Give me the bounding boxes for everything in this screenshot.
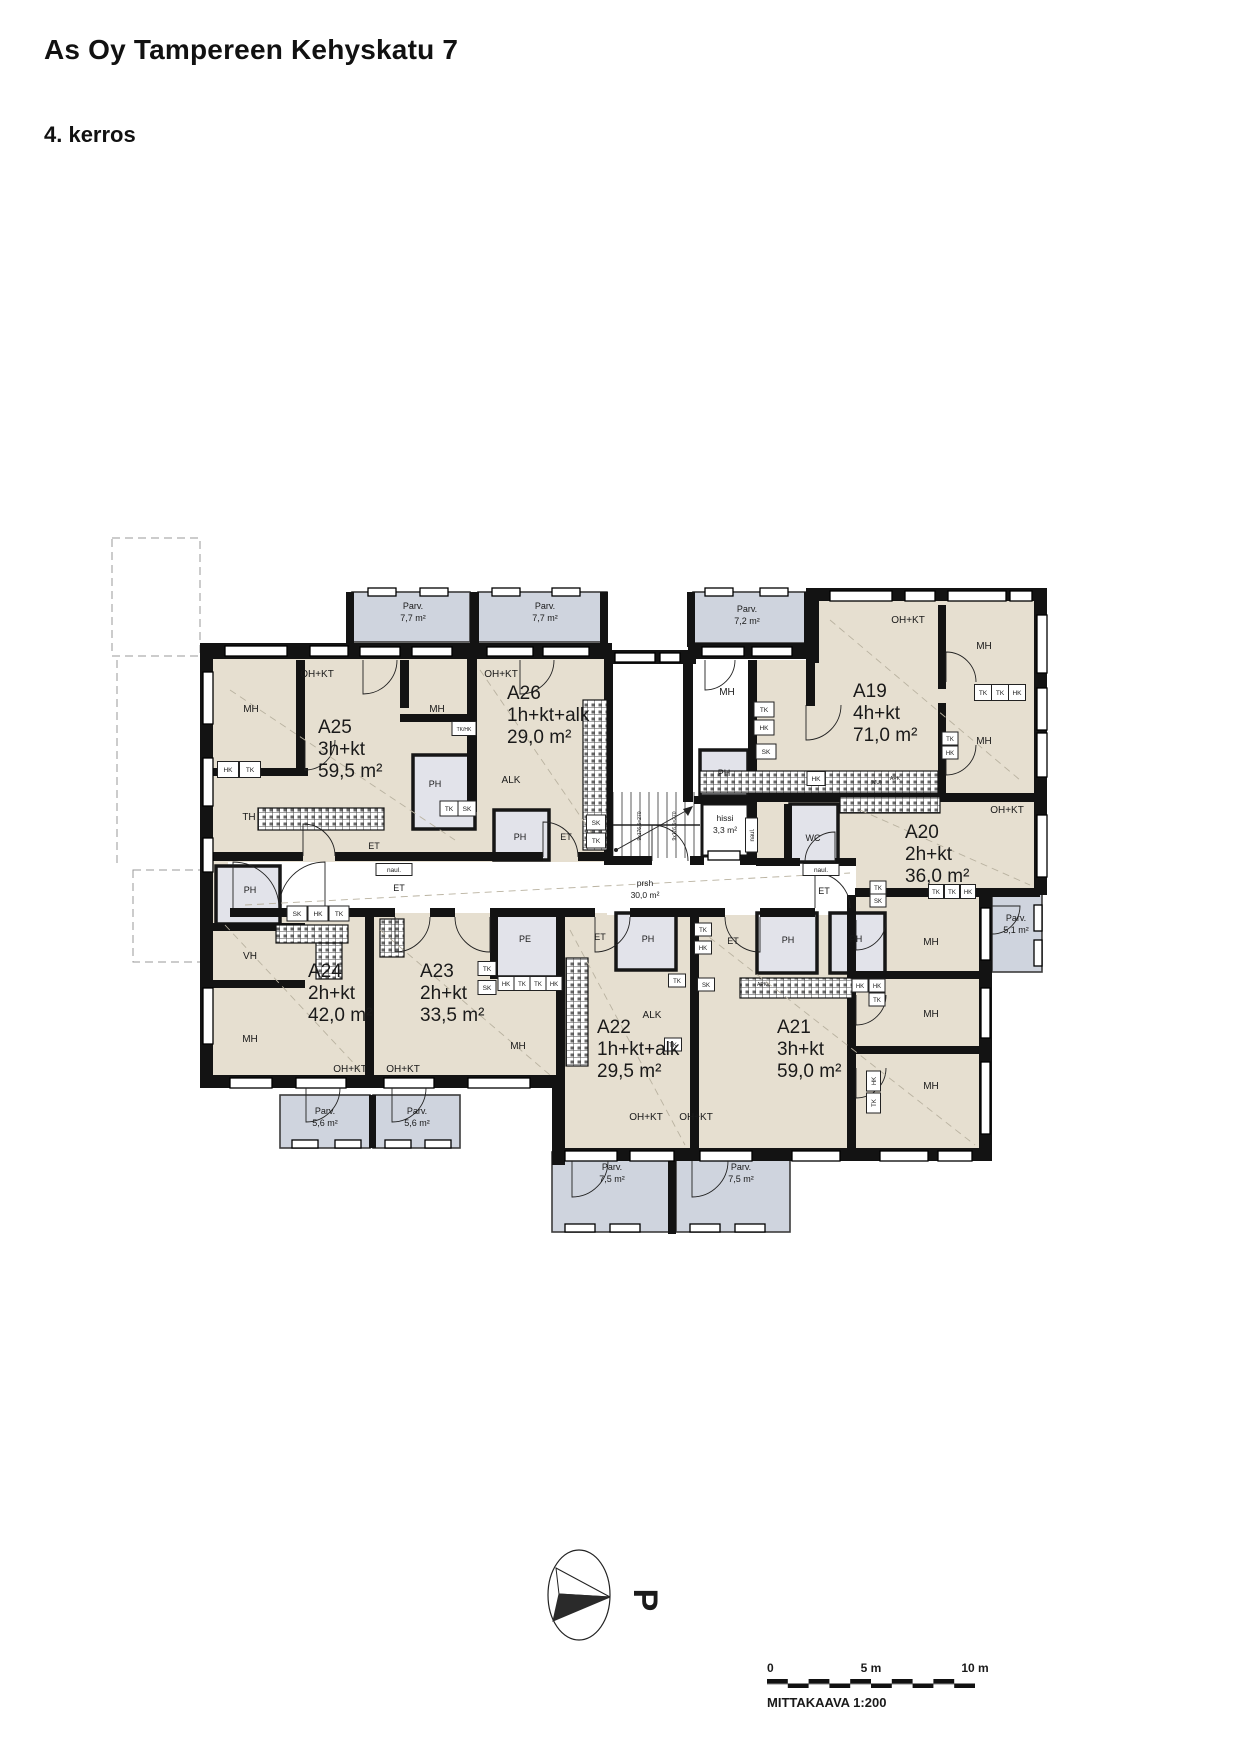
room-label: SK: [293, 911, 302, 918]
room-label: HK: [873, 984, 881, 990]
room-label: PH: [850, 934, 863, 944]
room-label: TK: [932, 890, 940, 896]
balcony-label: Parv.: [403, 601, 423, 611]
room-label: TK: [874, 886, 882, 892]
apartment-area: 29,5 m²: [597, 1061, 661, 1082]
apartment-area: 59,0 m²: [777, 1061, 841, 1082]
scale-zero: 0: [767, 1661, 774, 1675]
scale-mid: 5 m: [861, 1661, 882, 1675]
apartment-id: A26: [507, 683, 541, 704]
room-label: HK: [856, 984, 864, 990]
room-label: naul.: [814, 867, 828, 874]
balcony-label: Parv.: [737, 604, 757, 614]
apartment-id: A25: [318, 717, 352, 738]
scale-bar: 0 5 m 10 m MITTAKAAVA 1:200: [767, 1661, 989, 1710]
room-label: MH: [923, 1081, 939, 1092]
room-label: HK: [872, 1077, 878, 1085]
room-label: PH: [429, 779, 442, 789]
room-label: TK: [673, 979, 681, 985]
room-label: TK: [873, 998, 881, 1004]
room-label: ET: [818, 886, 830, 896]
room-label: naul.: [750, 828, 756, 841]
room-label: TK: [592, 838, 601, 845]
room-label: ET: [727, 936, 739, 946]
room-label: HK: [759, 725, 769, 732]
room-label: TK: [483, 966, 492, 973]
north-arrow: P: [548, 1550, 664, 1640]
property-lines: [112, 538, 201, 962]
room-label: TK: [996, 690, 1005, 697]
room-label: PH: [244, 885, 257, 895]
room-label: TK: [946, 737, 954, 743]
apartment-area: 29,0 m²: [507, 727, 571, 748]
room-label: HK: [502, 982, 510, 988]
apartment-area: 59,5 m²: [318, 761, 382, 782]
room-label: TK: [246, 767, 255, 774]
room-label: ALK: [643, 1010, 662, 1021]
apartment-area: 36,0 m²: [905, 866, 969, 887]
room-label: prsh: [637, 878, 654, 888]
room-label: TK: [335, 911, 344, 918]
apartment-area: 42,0 m²: [308, 1005, 372, 1026]
room-label: MH: [242, 1034, 258, 1045]
room-label: TK: [760, 707, 769, 714]
balcony-area: 7,7 m²: [400, 613, 426, 623]
scale-end: 10 m: [961, 1661, 988, 1675]
apartment-id: A22: [597, 1017, 631, 1038]
room-label: SK: [762, 749, 771, 756]
room-label: OH+KT: [484, 669, 518, 680]
room-label: 9x176,5=270: [637, 811, 643, 840]
apartment-id: A24: [308, 961, 342, 982]
room-label: HK: [223, 767, 233, 774]
room-label: PH: [642, 934, 655, 944]
balcony-label: Parv.: [602, 1162, 622, 1172]
room-label: MH: [243, 704, 259, 715]
room-label: ALK: [502, 775, 521, 786]
balcony-label: Parv.: [1006, 913, 1026, 923]
room-label: MH: [976, 736, 992, 747]
room-label: MH: [719, 687, 735, 698]
room-label: ET: [594, 932, 606, 942]
apartment-id: A19: [853, 681, 887, 702]
room-label: SK: [592, 820, 601, 827]
room-label: naul.: [387, 867, 401, 874]
room-label: TK: [699, 928, 707, 934]
room-label: TK: [518, 982, 526, 988]
floorplan-sheet: As Oy Tampereen Kehyskatu 7 4. kerros: [0, 0, 1240, 1754]
balcony-area: 5,1 m²: [1003, 925, 1029, 935]
apartment-area: 33,5 m²: [420, 1005, 484, 1026]
apartment-type: 2h+kt: [308, 983, 356, 1004]
room-label: HK: [964, 890, 972, 896]
room-label: PH: [718, 768, 731, 778]
room-label: HK: [699, 946, 707, 952]
balcony-area: 7,5 m²: [599, 1174, 625, 1184]
room-label: ET: [560, 832, 572, 842]
room-label: HK: [550, 982, 558, 988]
apartment-id: A23: [420, 961, 454, 982]
balcony-label: Parv.: [535, 601, 555, 611]
north-label: P: [626, 1589, 664, 1612]
room-label: WC: [806, 833, 821, 843]
room-label: TK/HK: [457, 727, 472, 733]
room-label: PE: [519, 934, 531, 944]
balcony-area: 5,6 m²: [404, 1118, 430, 1128]
room-label: OH+KT: [300, 669, 334, 680]
room-label: hissi: [716, 813, 733, 823]
room-label: OH+KT: [629, 1112, 663, 1123]
floor-plan-drawing: P 0 5 m 10 m MITTAKAAVA 1:200 OH+KTMHMHT…: [0, 0, 1240, 1754]
room-label: HK: [946, 751, 954, 757]
room-label: OH+KT: [386, 1064, 420, 1075]
room-label: MH: [510, 1041, 526, 1052]
room-label: OH+KT: [333, 1064, 367, 1075]
room-label: ET: [368, 841, 380, 851]
balcony-area: 5,6 m²: [312, 1118, 338, 1128]
room-label: MH: [976, 641, 992, 652]
room-label: ET: [393, 883, 405, 893]
apartment-type: 3h+kt: [318, 739, 366, 760]
room-label: TK: [948, 890, 956, 896]
room-label: PH: [514, 832, 527, 842]
apartment-type: 2h+kt: [420, 983, 468, 1004]
apartment-area: 71,0 m²: [853, 725, 917, 746]
apartment-type: 1h+kt+alk: [507, 705, 590, 726]
room-label: TK: [979, 690, 988, 697]
apartment-type: 1h+kt+alk: [597, 1039, 680, 1060]
apartment-type: 4h+kt: [853, 703, 901, 724]
room-label: 3,3 m²: [713, 825, 737, 835]
room-label: MH: [923, 1009, 939, 1020]
room-label: SK: [463, 806, 472, 813]
room-label: TK: [534, 982, 542, 988]
apartment-type: 2h+kt: [905, 844, 953, 865]
room-label: SK: [483, 985, 492, 992]
balcony-label: Parv.: [407, 1106, 427, 1116]
room-label: HK: [1012, 690, 1022, 697]
room-label: VH: [243, 951, 257, 962]
room-label: TH: [242, 812, 255, 823]
room-label: 9x176,5=270: [672, 811, 678, 840]
room-label: OH+KT: [679, 1112, 713, 1123]
room-label: APK: [757, 982, 768, 988]
room-label: HK: [811, 776, 821, 783]
balcony-label: Parv.: [315, 1106, 335, 1116]
room-label: OH+KT: [891, 615, 925, 626]
room-label: MH: [429, 704, 445, 715]
scale-caption: MITTAKAAVA 1:200: [767, 1695, 886, 1710]
room-label: SK: [874, 899, 882, 905]
room-label: SK: [702, 983, 710, 989]
room-label: HK: [313, 911, 323, 918]
room-label: TK: [445, 806, 454, 813]
balcony-area: 7,7 m²: [532, 613, 558, 623]
room-label: TK: [872, 1099, 878, 1107]
room-label: OH+KT: [990, 805, 1024, 816]
room-label: APK: [890, 776, 901, 782]
room-label: PH: [782, 935, 795, 945]
balcony-area: 7,5 m²: [728, 1174, 754, 1184]
apartment-type: 3h+kt: [777, 1039, 825, 1060]
room-label: 30,0 m²: [631, 890, 660, 900]
apartment-id: A21: [777, 1017, 811, 1038]
balcony-label: Parv.: [731, 1162, 751, 1172]
room-label: (MU): [870, 780, 881, 786]
apartment-id: A20: [905, 822, 939, 843]
balcony-area: 7,2 m²: [734, 616, 760, 626]
room-label: MH: [923, 937, 939, 948]
